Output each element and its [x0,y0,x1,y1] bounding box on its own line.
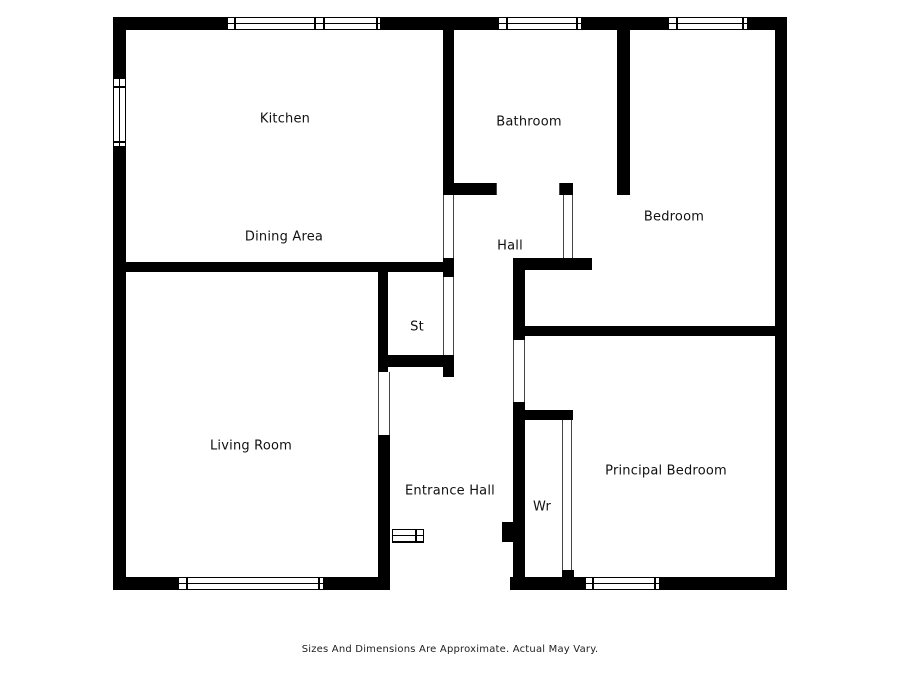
wall [560,183,573,195]
window-frame [676,18,678,29]
front-door-icon [392,529,424,543]
door-frame-tick [415,530,417,541]
bedroom-door [563,195,573,258]
wall [775,17,787,590]
wall [443,355,454,377]
wall [513,402,525,577]
wall [378,262,388,372]
wall [513,326,776,336]
window-frame [318,578,320,589]
room-label-storage: St [410,320,424,335]
room-label-entrance-hall: Entrance Hall [405,484,495,499]
window-pane [669,23,747,24]
window-pane [228,23,380,24]
window-frame [186,578,188,589]
window-pane [586,583,659,584]
window-pane [119,79,120,146]
room-label-living-room: Living Room [210,439,292,454]
wall [502,522,523,542]
wall [378,435,390,578]
principal-bedroom-door [513,340,525,402]
window-pane [499,23,581,24]
wall [443,258,454,277]
room-label-dining-area: Dining Area [245,230,323,245]
wall [443,183,496,195]
wall [617,30,630,195]
window-frame [114,141,125,143]
window-frame [506,18,508,29]
room-label-principal-bedroom: Principal Bedroom [605,464,727,479]
floorplan-canvas: Sizes And Dimensions Are Approximate. Ac… [0,0,900,675]
room-label-bedroom: Bedroom [644,210,704,225]
kitchen-side-window-icon [113,78,126,147]
door-leaf-line [393,535,423,536]
bathroom-door [496,183,560,195]
room-label-bathroom: Bathroom [496,115,561,130]
window-frame [376,18,378,29]
wall [125,262,443,272]
window-frame [114,86,125,88]
bedroom-window-icon [668,17,748,30]
window-frame [323,18,325,29]
storage-door [443,277,454,355]
front-entrance [390,577,510,590]
bathroom-window-icon [498,17,582,30]
room-label-hall: Hall [497,239,523,254]
wall [562,570,574,579]
window-frame [314,18,316,29]
wall [522,410,573,420]
principal-bedroom-window-icon [585,577,660,590]
wardrobe-opening [562,420,572,570]
window-frame [654,578,656,589]
window-pane [179,583,323,584]
disclaimer-text: Sizes And Dimensions Are Approximate. Ac… [0,644,900,655]
room-label-wardrobe: Wr [533,500,551,515]
window-frame [576,18,578,29]
window-frame [234,18,236,29]
window-frame [742,18,744,29]
living-room-door [378,372,390,435]
hall-door [443,195,454,258]
room-label-kitchen: Kitchen [260,112,310,127]
wall [443,30,454,195]
living-room-window-icon [178,577,324,590]
kitchen-window-icon [227,17,381,30]
window-frame [592,578,594,589]
